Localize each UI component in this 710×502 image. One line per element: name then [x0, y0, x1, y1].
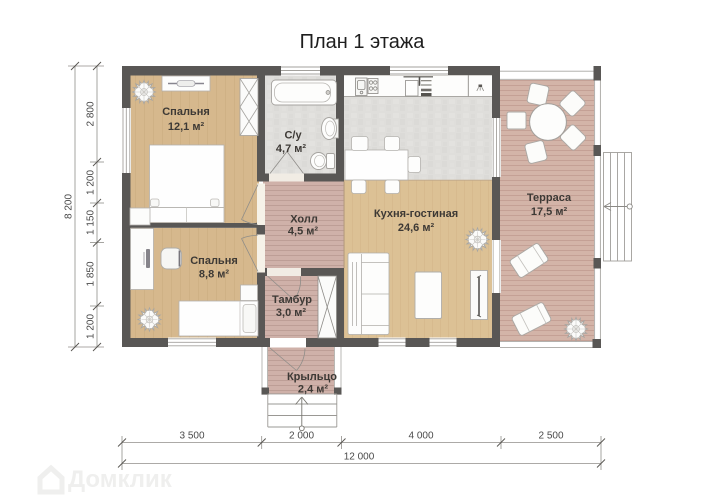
svg-text:24,6 м²: 24,6 м²	[398, 222, 435, 234]
svg-text:1 200: 1 200	[86, 170, 97, 195]
svg-text:1 150: 1 150	[86, 210, 97, 235]
svg-text:Терраса: Терраса	[527, 192, 572, 204]
svg-text:Кухня-гостиная: Кухня-гостиная	[374, 208, 458, 220]
svg-text:Холл: Холл	[290, 214, 318, 226]
svg-text:2 500: 2 500	[538, 431, 563, 442]
svg-text:3 500: 3 500	[179, 431, 204, 442]
svg-text:8 200: 8 200	[64, 194, 75, 219]
svg-text:12,1 м²: 12,1 м²	[168, 121, 205, 133]
svg-text:Домклик: Домклик	[68, 466, 173, 493]
svg-text:2 800: 2 800	[86, 101, 97, 126]
svg-text:С/у: С/у	[284, 130, 302, 142]
svg-text:Тамбур: Тамбур	[272, 294, 312, 306]
svg-text:4,5 м²: 4,5 м²	[288, 226, 318, 238]
svg-text:3,0 м²: 3,0 м²	[276, 307, 306, 319]
svg-text:1 850: 1 850	[86, 261, 97, 286]
svg-text:12 000: 12 000	[344, 452, 375, 463]
svg-text:План 1 этажа: План 1 этажа	[300, 31, 426, 53]
svg-text:Спальня: Спальня	[162, 106, 210, 118]
svg-text:2 000: 2 000	[289, 431, 314, 442]
svg-text:2,4 м²: 2,4 м²	[298, 384, 328, 396]
svg-text:Спальня: Спальня	[190, 255, 238, 267]
svg-text:4,7 м²: 4,7 м²	[276, 143, 306, 155]
svg-text:8,8 м²: 8,8 м²	[199, 269, 229, 281]
svg-text:1 200: 1 200	[86, 314, 97, 339]
svg-text:Крыльцо: Крыльцо	[287, 371, 337, 383]
svg-text:17,5 м²: 17,5 м²	[531, 206, 568, 218]
svg-text:4 000: 4 000	[408, 431, 433, 442]
